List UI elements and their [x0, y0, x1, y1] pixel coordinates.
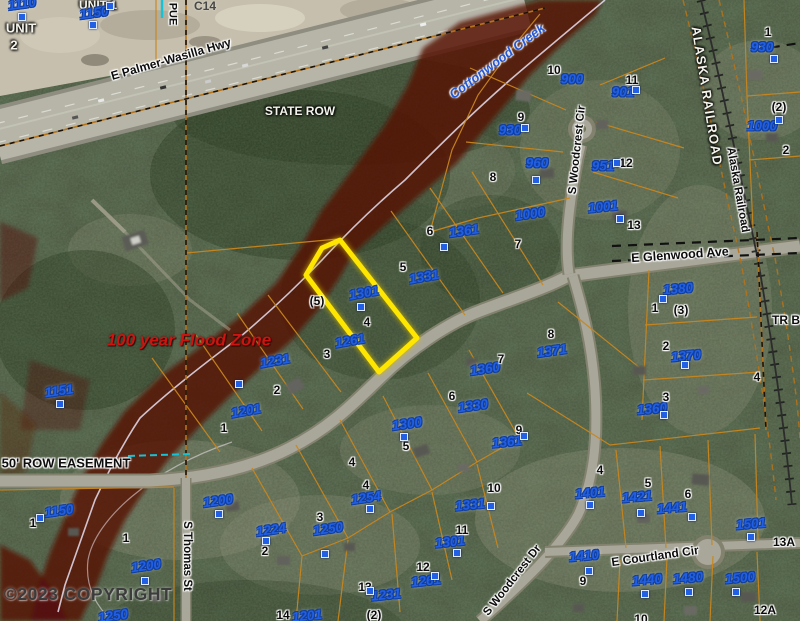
- address-label: 1150: [44, 502, 75, 519]
- address-marker-dot: [532, 176, 540, 184]
- area-label: UNIT: [6, 22, 36, 35]
- address-label: 930: [499, 123, 522, 137]
- lot-number-label: 2: [262, 545, 269, 557]
- address-marker-dot: [215, 510, 223, 518]
- area-label: C14: [194, 0, 216, 12]
- area-label: ALASKA RAILROAD: [690, 25, 725, 166]
- lot-number-label: 5: [400, 261, 407, 273]
- address-marker-dot: [440, 243, 448, 251]
- address-label: 1200: [202, 492, 234, 510]
- address-label: 1421: [621, 489, 652, 505]
- lot-number-label: 2: [274, 384, 281, 396]
- lot-number-label: 12: [619, 157, 632, 169]
- street-label: E Palmer-Wasilla Hwy: [110, 36, 233, 82]
- address-marker-dot: [235, 380, 243, 388]
- lot-number-label: 4: [363, 479, 370, 491]
- lot-number-label: 7: [498, 353, 505, 365]
- address-label: 1250: [97, 607, 129, 621]
- lot-number-label: 8: [490, 171, 497, 183]
- address-label: 1000: [514, 205, 546, 223]
- lot-number-label: 11: [626, 74, 639, 86]
- address-label: 930: [751, 40, 774, 54]
- lot-number-label: 9: [580, 575, 587, 587]
- address-marker-dot: [106, 2, 114, 10]
- address-marker-dot: [431, 572, 439, 580]
- address-label: 1500: [724, 570, 755, 586]
- lot-number-label: 3: [663, 391, 670, 403]
- address-marker-dot: [400, 433, 408, 441]
- lot-number-label: (2): [367, 609, 382, 621]
- address-marker-dot: [262, 537, 270, 545]
- street-label: Alaska Railroad: [724, 147, 750, 234]
- address-marker-dot: [637, 509, 645, 517]
- address-label: 1331: [454, 497, 485, 514]
- address-marker-dot: [321, 550, 329, 558]
- lot-number-label: (2): [772, 101, 787, 113]
- address-label: 1231: [259, 352, 291, 371]
- address-marker-dot: [56, 400, 64, 408]
- lot-number-label: 12A: [754, 604, 776, 616]
- address-marker-dot: [659, 295, 667, 303]
- area-label: 2: [10, 39, 17, 52]
- parcel-map: UNIT 1UNIT2STATE ROWALASKA RAILROADTR BC…: [0, 0, 800, 621]
- street-label: E Courtland Cir: [611, 544, 700, 568]
- address-label: 1380: [662, 281, 693, 297]
- lot-number-label: 4: [364, 316, 371, 328]
- lot-number-label: 13A: [773, 536, 795, 548]
- area-label: 100 year Flood Zone: [107, 332, 271, 349]
- lot-number-label: 11: [456, 524, 469, 536]
- lot-number-label: (3): [674, 304, 689, 316]
- address-label: 1200: [130, 557, 162, 575]
- lot-number-label: 6: [449, 390, 456, 402]
- lot-number-label: 1: [221, 422, 228, 434]
- address-label: 1301: [348, 284, 380, 303]
- address-marker-dot: [521, 124, 529, 132]
- address-marker-dot: [366, 587, 374, 595]
- address-label: 1231: [370, 587, 401, 604]
- lot-number-label: 14: [276, 609, 289, 621]
- address-marker-dot: [357, 303, 365, 311]
- address-label: 1300: [391, 415, 423, 433]
- lot-number-label: 2: [663, 340, 670, 352]
- address-marker-dot: [775, 116, 783, 124]
- address-marker-dot: [366, 505, 374, 513]
- lot-number-label: 10: [634, 613, 647, 621]
- lot-number-label: 4: [754, 371, 761, 383]
- address-marker-dot: [732, 588, 740, 596]
- lot-number-label: 3: [317, 511, 324, 523]
- address-marker-dot: [89, 21, 97, 29]
- address-label: 1401: [574, 485, 605, 501]
- map-labels: UNIT 1UNIT2STATE ROWALASKA RAILROADTR BC…: [0, 0, 800, 621]
- area-label: TR B: [772, 314, 800, 326]
- lot-number-label: 4: [349, 456, 356, 468]
- address-label: 1201: [291, 608, 322, 621]
- lot-number-label: (5): [310, 295, 325, 307]
- address-marker-dot: [641, 590, 649, 598]
- address-marker-dot: [585, 567, 593, 575]
- address-label: 900: [561, 72, 584, 86]
- address-label: 1501: [735, 516, 766, 532]
- address-label: 1001: [587, 199, 618, 216]
- address-marker-dot: [632, 86, 640, 94]
- lot-number-label: 7: [515, 238, 522, 250]
- lot-number-label: 13: [627, 219, 640, 231]
- address-marker-dot: [660, 411, 668, 419]
- address-marker-dot: [688, 513, 696, 521]
- address-label: 1224: [255, 521, 287, 539]
- street-label: E Glenwood Ave: [631, 245, 729, 264]
- lot-number-label: 9: [518, 111, 525, 123]
- street-label: PUE: [167, 3, 178, 26]
- address-label: 1150: [79, 4, 110, 21]
- address-label: 960: [526, 156, 549, 170]
- lot-number-label: 6: [427, 225, 434, 237]
- street-label: S Thomas St: [180, 521, 192, 591]
- address-marker-dot: [616, 215, 624, 223]
- address-marker-dot: [18, 13, 26, 21]
- address-marker-dot: [747, 533, 755, 541]
- address-marker-dot: [520, 432, 528, 440]
- address-marker-dot: [770, 55, 778, 63]
- address-label: 1480: [672, 570, 703, 586]
- address-marker-dot: [586, 501, 594, 509]
- address-marker-dot: [613, 159, 621, 167]
- address-label: 901: [612, 85, 635, 99]
- area-label: 50' ROW EASEMENT: [2, 457, 131, 470]
- address-label: 1440: [631, 572, 662, 588]
- copyright-watermark: ©2023 COPYRIGHT: [4, 584, 172, 605]
- address-marker-dot: [453, 549, 461, 557]
- lot-number-label: 6: [685, 488, 692, 500]
- lot-number-label: 12: [416, 561, 429, 573]
- lot-number-label: 1: [765, 26, 772, 38]
- address-marker-dot: [685, 588, 693, 596]
- area-label: Cottonwood Creek: [447, 21, 547, 101]
- lot-number-label: 1: [123, 532, 130, 544]
- address-label: 1261: [334, 332, 366, 351]
- address-label: 1151: [44, 382, 75, 399]
- lot-number-label: 10: [487, 482, 500, 494]
- address-label: 1201: [230, 402, 262, 421]
- address-label: 951: [592, 159, 615, 173]
- lot-number-label: 2: [783, 144, 790, 156]
- address-label: 1360: [469, 360, 501, 378]
- address-label: 1331: [408, 268, 440, 287]
- address-label: 1330: [457, 397, 489, 415]
- address-marker-dot: [36, 514, 44, 522]
- address-label: 1110: [7, 0, 37, 13]
- lot-number-label: 3: [324, 348, 331, 360]
- lot-number-label: 8: [548, 328, 555, 340]
- address-label: 1371: [536, 342, 568, 360]
- lot-number-label: 1: [652, 302, 659, 314]
- address-label: 1000: [747, 119, 777, 133]
- address-marker-dot: [487, 502, 495, 510]
- street-label: S Woodcrest Cir: [568, 105, 589, 195]
- address-marker-dot: [681, 361, 689, 369]
- address-label: 1361: [448, 222, 480, 240]
- lot-number-label: 4: [597, 464, 604, 476]
- area-label: STATE ROW: [265, 105, 335, 117]
- lot-number-label: 5: [645, 477, 652, 489]
- lot-number-label: 5: [403, 440, 410, 452]
- address-label: 1441: [656, 500, 687, 516]
- lot-number-label: 10: [547, 64, 560, 76]
- street-label: S Woodcrest Dr: [482, 544, 544, 619]
- address-label: 1410: [568, 548, 599, 564]
